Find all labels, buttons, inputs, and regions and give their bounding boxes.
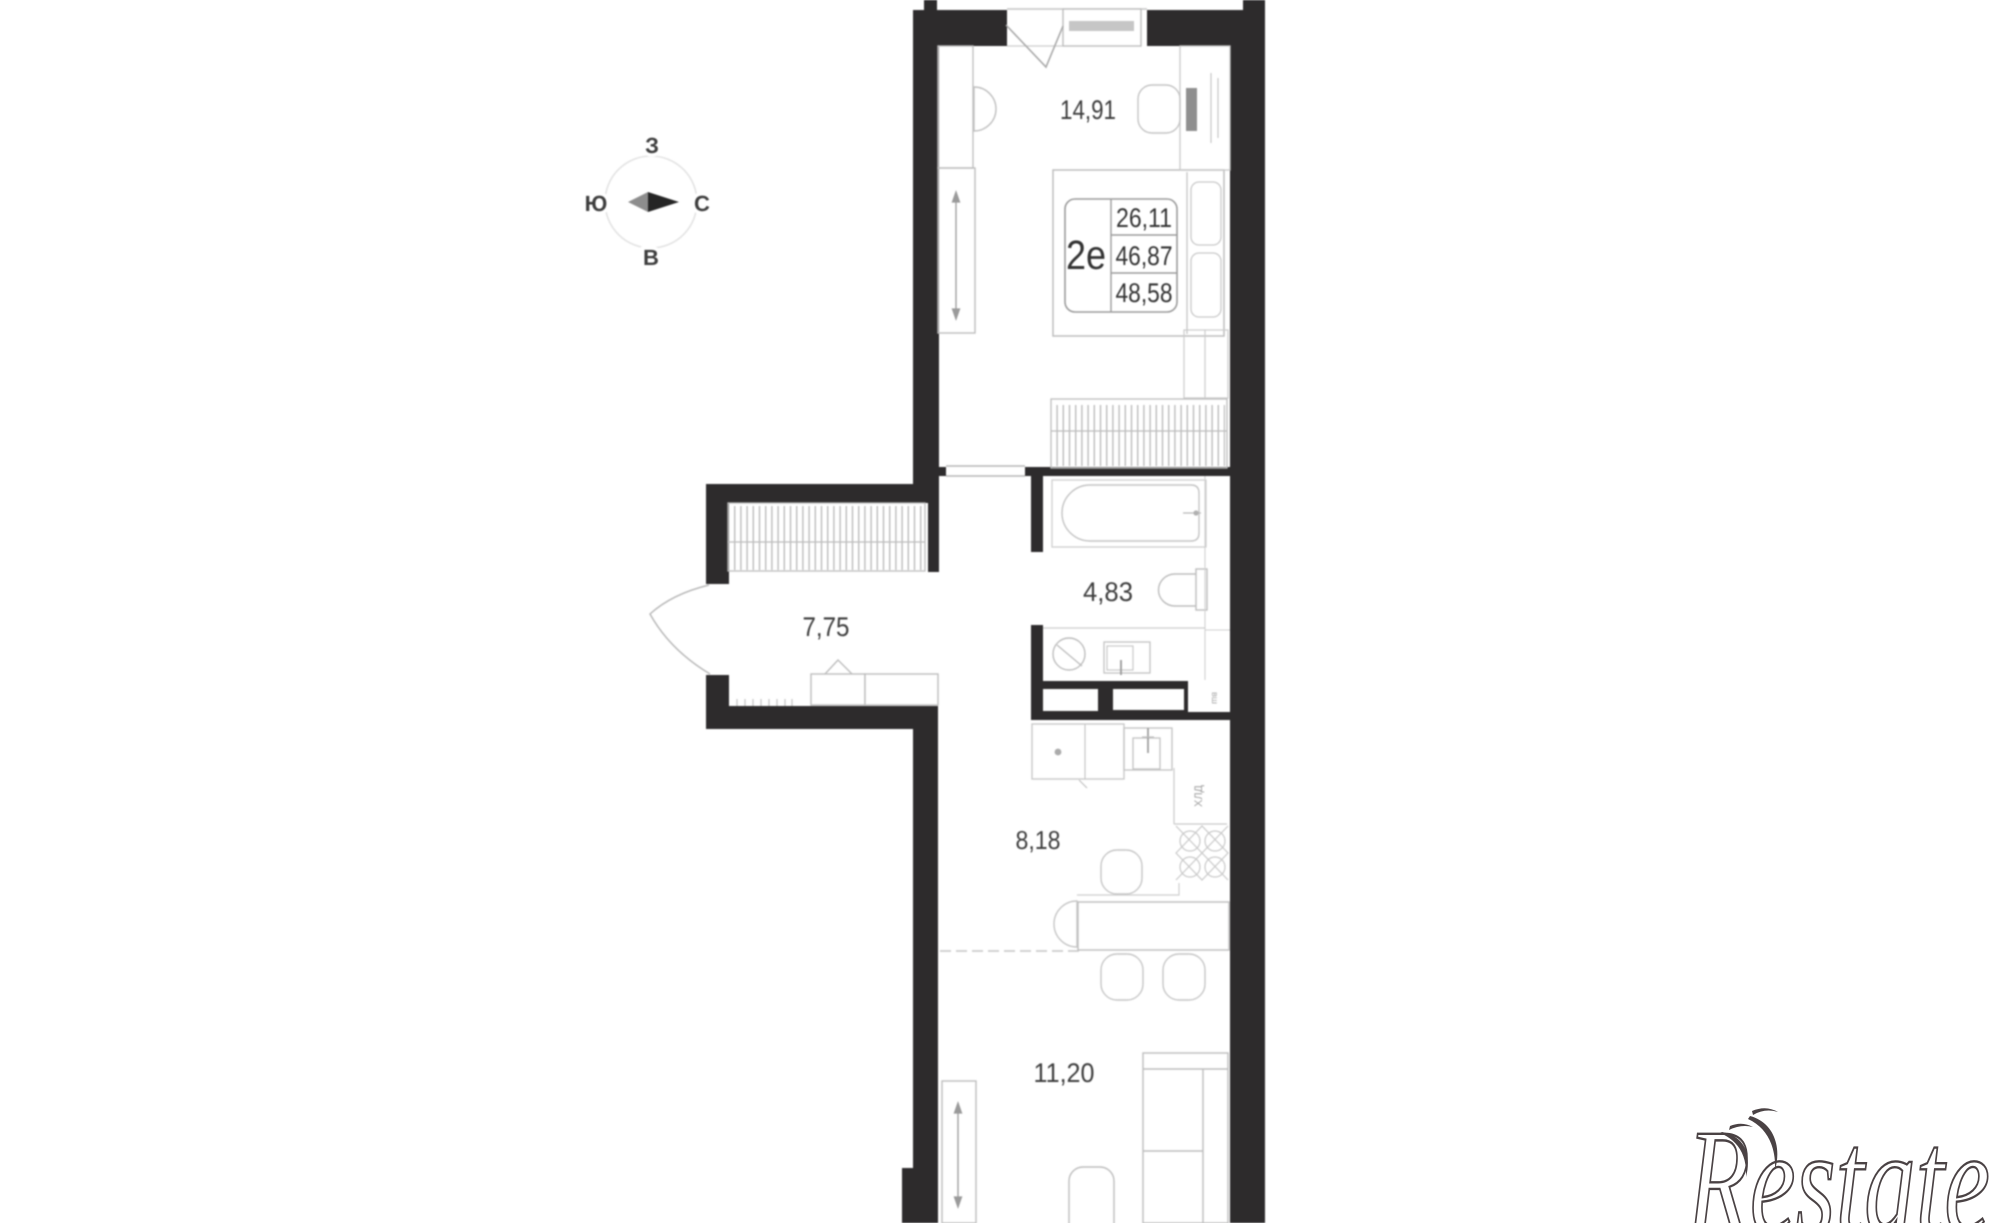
svg-text:46,87: 46,87 xyxy=(1116,241,1173,271)
svg-text:4,83: 4,83 xyxy=(1083,577,1133,607)
svg-text:З: З xyxy=(645,133,659,158)
svg-text:В: В xyxy=(643,245,659,270)
svg-text:26,11: 26,11 xyxy=(1116,203,1172,233)
svg-text:Ю: Ю xyxy=(585,191,608,216)
svg-text:вш: вш xyxy=(1210,692,1220,704)
svg-text:48,58: 48,58 xyxy=(1116,278,1173,308)
svg-text:2е: 2е xyxy=(1066,232,1106,278)
svg-text:14,91: 14,91 xyxy=(1060,95,1116,125)
svg-text:С: С xyxy=(694,191,710,216)
svg-text:7,75: 7,75 xyxy=(803,612,850,642)
svg-text:Restate: Restate xyxy=(1686,1099,1990,1223)
svg-text:ХЛД: ХЛД xyxy=(1193,784,1205,807)
svg-text:11,20: 11,20 xyxy=(1034,1058,1095,1088)
svg-text:8,18: 8,18 xyxy=(1016,825,1061,855)
